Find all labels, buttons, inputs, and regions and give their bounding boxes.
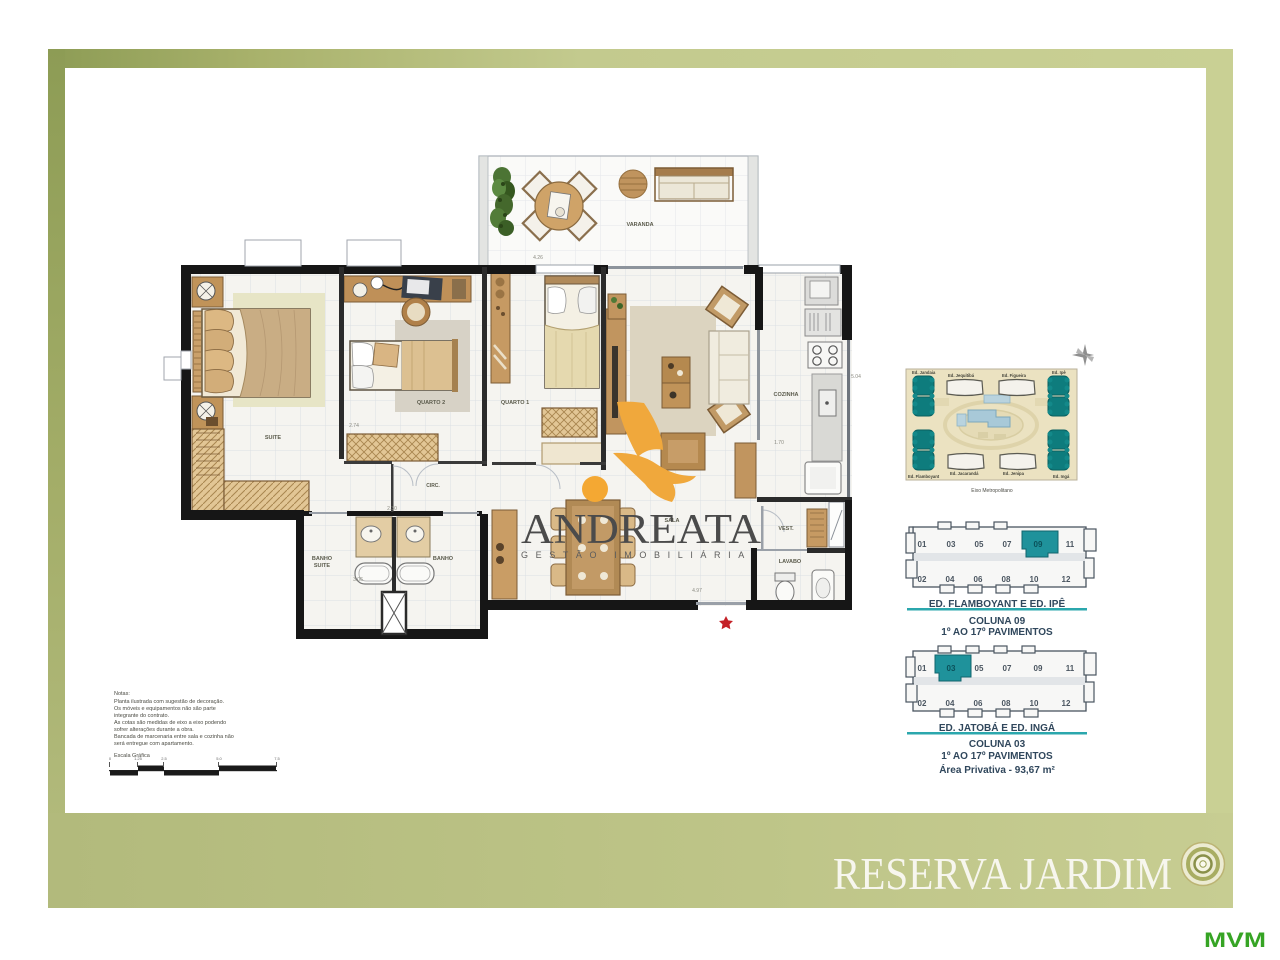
svg-text:sofrer alterações durante a ob: sofrer alterações durante a obra. <box>114 727 194 733</box>
svg-text:Bancada de marcenaria entre sa: Bancada de marcenaria entre sala e cozin… <box>114 734 234 740</box>
svg-text:04: 04 <box>946 699 955 708</box>
svg-text:COLUNA 03: COLUNA 03 <box>969 739 1026 750</box>
svg-text:4.97: 4.97 <box>692 588 702 594</box>
svg-text:será entregue com apartamento.: será entregue com apartamento. <box>114 741 194 747</box>
svg-text:03: 03 <box>947 540 956 549</box>
svg-text:1º AO 17º PAVIMENTOS: 1º AO 17º PAVIMENTOS <box>941 627 1053 638</box>
svg-text:03: 03 <box>947 664 956 673</box>
svg-text:4.26: 4.26 <box>533 255 543 261</box>
svg-text:RESERVA JARDIM: RESERVA JARDIM <box>833 848 1172 899</box>
svg-text:Ed. Jacarandá: Ed. Jacarandá <box>950 471 979 476</box>
svg-text:2.5: 2.5 <box>161 756 167 761</box>
svg-text:12: 12 <box>1062 699 1071 708</box>
svg-text:09: 09 <box>1034 540 1043 549</box>
svg-text:COLUNA 09: COLUNA 09 <box>969 616 1026 627</box>
svg-text:5.04: 5.04 <box>851 374 861 380</box>
svg-text:02: 02 <box>918 575 927 584</box>
svg-text:Ed. Jandaia: Ed. Jandaia <box>912 370 936 375</box>
svg-text:2.74: 2.74 <box>349 423 359 429</box>
svg-text:QUARTO 2: QUARTO 2 <box>417 400 445 406</box>
svg-text:Ed. Jequitibá: Ed. Jequitibá <box>948 373 975 378</box>
svg-text:BANHO: BANHO <box>312 556 333 562</box>
svg-text:05: 05 <box>975 540 984 549</box>
svg-text:Notas:: Notas: <box>114 691 130 697</box>
svg-text:7.5: 7.5 <box>274 756 280 761</box>
svg-text:VARANDA: VARANDA <box>626 222 653 228</box>
svg-text:VEST.: VEST. <box>778 526 794 532</box>
svg-text:10: 10 <box>1030 575 1039 584</box>
svg-text:11: 11 <box>1066 664 1075 673</box>
svg-text:SUITE: SUITE <box>314 563 331 569</box>
svg-text:07: 07 <box>1003 664 1012 673</box>
svg-text:COZINHA: COZINHA <box>773 392 798 398</box>
svg-text:SUITE: SUITE <box>265 435 282 441</box>
svg-text:08: 08 <box>1002 575 1011 584</box>
svg-text:CIRC.: CIRC. <box>426 483 440 489</box>
svg-text:Ed. Ingá: Ed. Ingá <box>1053 474 1070 479</box>
svg-text:MVM: MVM <box>1204 929 1266 952</box>
svg-text:Ed. Ipê: Ed. Ipê <box>1052 370 1066 375</box>
svg-text:09: 09 <box>1034 664 1043 673</box>
svg-text:08: 08 <box>1002 699 1011 708</box>
svg-text:Planta ilustrada com sugestão: Planta ilustrada com sugestão de decoraç… <box>114 699 225 705</box>
svg-text:01: 01 <box>918 540 927 549</box>
svg-text:06: 06 <box>974 699 983 708</box>
svg-text:As cotas são medidas de eixo a: As cotas são medidas de eixo a eixo pode… <box>114 720 226 726</box>
svg-text:Ed. Flamboyant: Ed. Flamboyant <box>908 474 940 479</box>
svg-text:Ed. Figueira: Ed. Figueira <box>1002 373 1027 378</box>
svg-text:1.25: 1.25 <box>134 756 143 761</box>
svg-text:Ed. Jenipa: Ed. Jenipa <box>1003 471 1025 476</box>
svg-text:04: 04 <box>946 575 955 584</box>
svg-text:Escala Gráfica: Escala Gráfica <box>114 753 151 759</box>
svg-text:1º AO 17º PAVIMENTOS: 1º AO 17º PAVIMENTOS <box>941 751 1053 762</box>
svg-text:11: 11 <box>1066 540 1075 549</box>
svg-text:05: 05 <box>975 664 984 673</box>
svg-text:2.30: 2.30 <box>387 506 397 512</box>
svg-text:integrante do contrato.: integrante do contrato. <box>114 713 170 719</box>
svg-text:1.70: 1.70 <box>774 440 784 446</box>
svg-text:07: 07 <box>1003 540 1012 549</box>
svg-text:ANDREATA: ANDREATA <box>521 507 762 553</box>
svg-text:LAVABO: LAVABO <box>779 559 802 565</box>
svg-text:10: 10 <box>1030 699 1039 708</box>
svg-text:02: 02 <box>918 699 927 708</box>
svg-text:06: 06 <box>974 575 983 584</box>
svg-text:Área Privativa - 93,67 m²: Área Privativa - 93,67 m² <box>939 763 1055 776</box>
svg-text:Os móveis e equipamentos não s: Os móveis e equipamentos não são parte <box>114 706 216 712</box>
svg-text:BANHO: BANHO <box>433 556 454 562</box>
svg-text:ED. FLAMBOYANT E ED. IPÊ: ED. FLAMBOYANT E ED. IPÊ <box>929 597 1066 610</box>
svg-text:12: 12 <box>1062 575 1071 584</box>
svg-text:Eixo Metropolitano: Eixo Metropolitano <box>971 488 1013 494</box>
svg-text:01: 01 <box>918 664 927 673</box>
svg-text:5.0: 5.0 <box>216 756 222 761</box>
svg-text:QUARTO 1: QUARTO 1 <box>501 400 529 406</box>
svg-text:3.06: 3.06 <box>353 577 363 583</box>
svg-text:GESTÃO IMOBILIÁRIA: GESTÃO IMOBILIÁRIA <box>521 550 752 560</box>
